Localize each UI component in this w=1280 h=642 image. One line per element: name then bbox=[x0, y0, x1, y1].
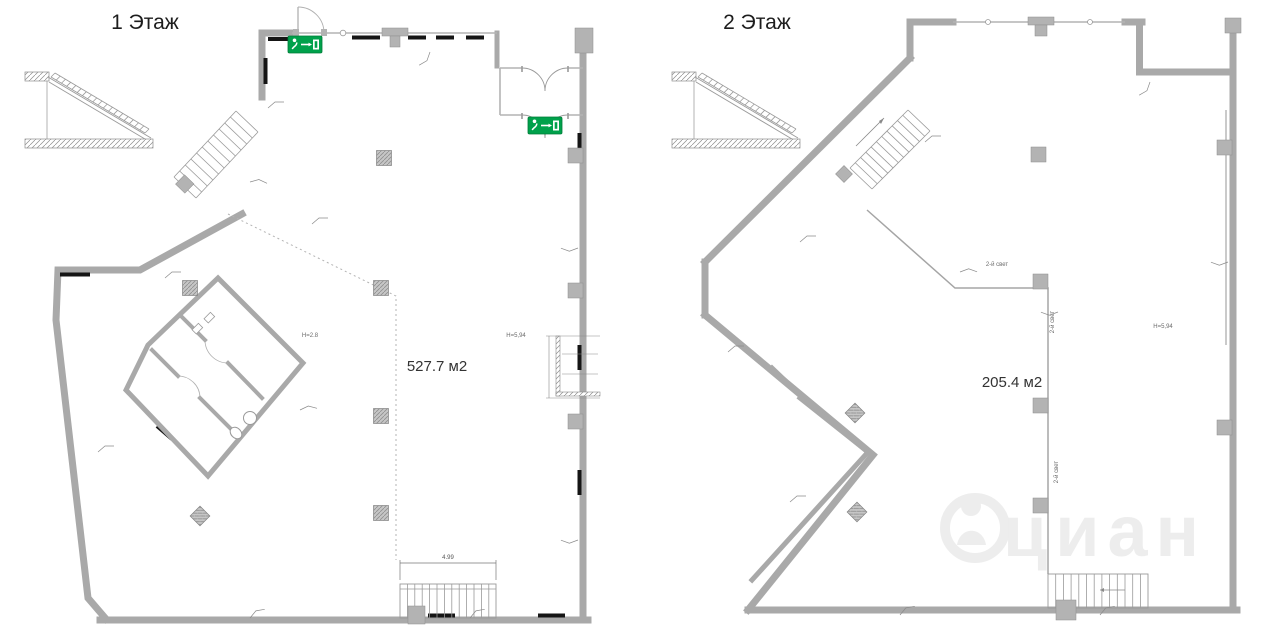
floor2-stair-landing-block bbox=[836, 166, 853, 183]
floor1-section-detail bbox=[25, 72, 153, 148]
floor1-stairs-dim-text: 4.99 bbox=[442, 555, 454, 561]
floor1-entry-door bbox=[293, 7, 327, 36]
floor2-thin-walls bbox=[953, 17, 1226, 345]
floor2-title: 2 Этаж bbox=[723, 11, 791, 34]
floor2-diagonal-stairs bbox=[850, 110, 930, 189]
floor1-window-bars bbox=[60, 38, 580, 616]
floor1-bathroom-block bbox=[126, 278, 303, 476]
floor1-exit-sign-top bbox=[288, 36, 322, 53]
floor2-void-label-side2: 2-й свет bbox=[1053, 461, 1060, 484]
floor2-columns bbox=[845, 140, 1232, 522]
floor1-stair-landing-block bbox=[176, 175, 194, 193]
floorplan-page: циан 1 Этаж bbox=[0, 0, 1280, 642]
floor1-shaft-detail bbox=[546, 336, 600, 398]
floor2-area-label: 205.4 м2 bbox=[982, 374, 1042, 391]
floor2-section-detail bbox=[672, 72, 800, 148]
floor1-height-main-label: Н=5,94 bbox=[506, 333, 526, 339]
floor2-bottom-stairs-landing bbox=[1056, 600, 1076, 620]
floor2-stairs-arrow bbox=[1100, 588, 1125, 592]
floor1-area-label: 527.7 м2 bbox=[407, 358, 467, 375]
floor1-stairs-dimension: 4.99 bbox=[400, 555, 496, 580]
floor1-title: 1 Этаж bbox=[111, 11, 179, 34]
floor2-stair-arrow bbox=[856, 118, 884, 146]
floor2-height-label: Н=5,94 bbox=[1153, 324, 1173, 330]
floor2-wall-cap bbox=[1225, 18, 1241, 33]
floor1-plan: 1 Этаж bbox=[25, 7, 600, 624]
cian-watermark: циан bbox=[945, 492, 1207, 572]
floor1-height-mezzanine-label: Н=2.8 bbox=[302, 333, 319, 339]
floor1-exit-sign-vestibule bbox=[528, 117, 562, 134]
floorplan-canvas: циан 1 Этаж bbox=[0, 0, 1280, 642]
floor1-bottom-stairs-landing bbox=[408, 606, 425, 624]
floor2-void-label-top: 2-й свет bbox=[986, 261, 1009, 268]
floor1-top-wall-fitting bbox=[340, 28, 593, 53]
